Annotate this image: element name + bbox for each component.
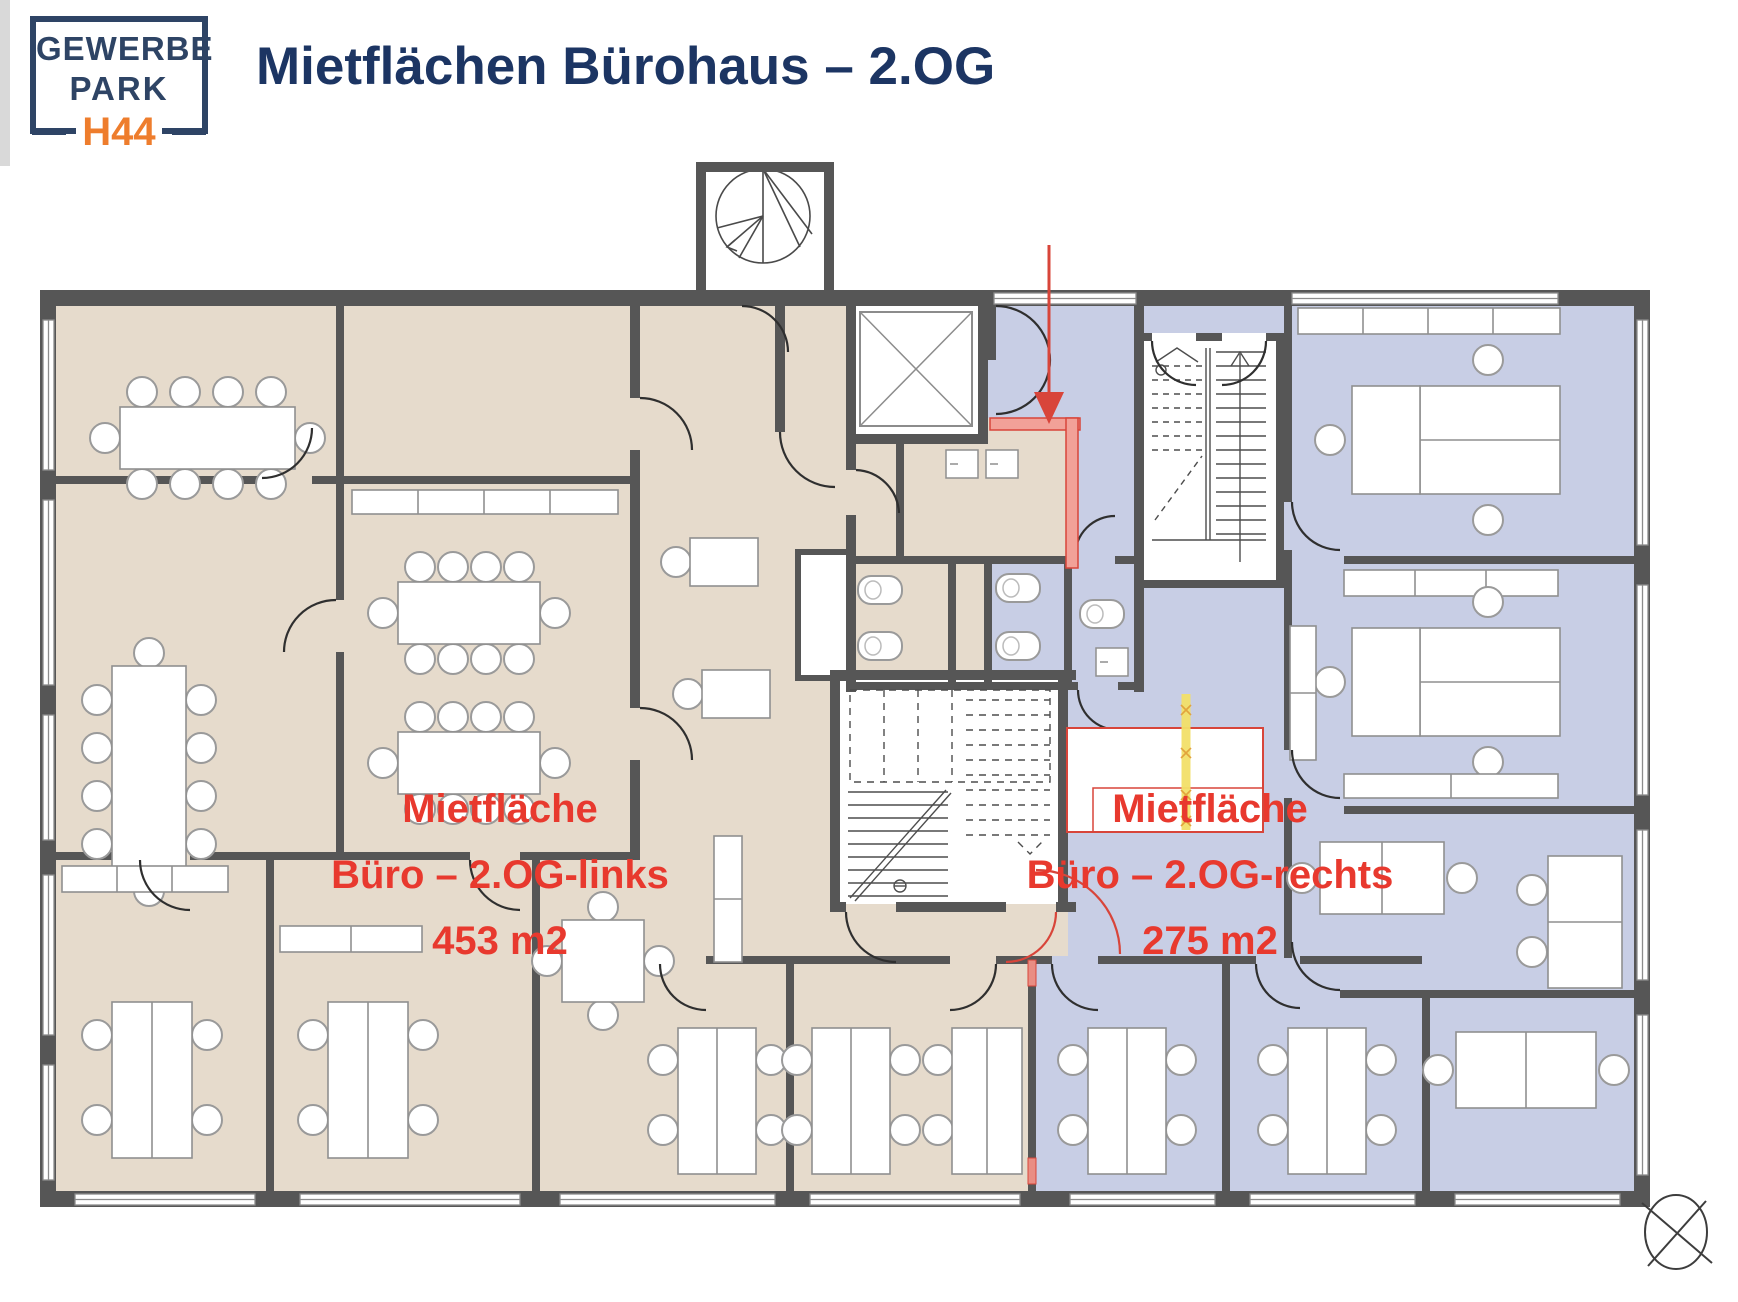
label-left-line2: Büro – 2.OG-links xyxy=(270,842,730,908)
toilet xyxy=(996,632,1040,660)
page: { "logo": { "line1": "GEWERBE", "line2":… xyxy=(0,0,1738,1302)
label-left-line3: 453 m2 xyxy=(270,908,730,974)
sink xyxy=(946,450,978,478)
label-unit-left: Mietfläche Büro – 2.OG-links 453 m2 xyxy=(270,776,730,974)
sink xyxy=(1096,648,1128,676)
shaft-void xyxy=(798,552,850,678)
toilet xyxy=(858,632,902,660)
elevator xyxy=(860,312,972,426)
floor-plan xyxy=(0,0,1738,1302)
sink xyxy=(986,450,1018,478)
toilet xyxy=(1080,600,1124,628)
red-boundary-vertical xyxy=(1066,418,1078,568)
compass-icon xyxy=(1642,1195,1712,1269)
toilet xyxy=(996,574,1040,602)
cabinet-row xyxy=(1298,308,1560,334)
sideboard xyxy=(62,866,228,892)
label-right-line1: Mietfläche xyxy=(980,776,1440,842)
spiral-staircase xyxy=(716,169,812,263)
label-right-line3: 275 m2 xyxy=(980,908,1440,974)
label-left-line1: Mietfläche xyxy=(270,776,730,842)
label-right-line2: Büro – 2.OG-rechts xyxy=(980,842,1440,908)
windows-right xyxy=(1637,320,1648,1175)
toilet xyxy=(858,576,902,604)
label-unit-right: Mietfläche Büro – 2.OG-rechts 275 m2 xyxy=(980,776,1440,974)
sideboard xyxy=(352,490,618,514)
cabinet-row xyxy=(1344,570,1558,596)
windows-bottom xyxy=(75,1194,1620,1205)
